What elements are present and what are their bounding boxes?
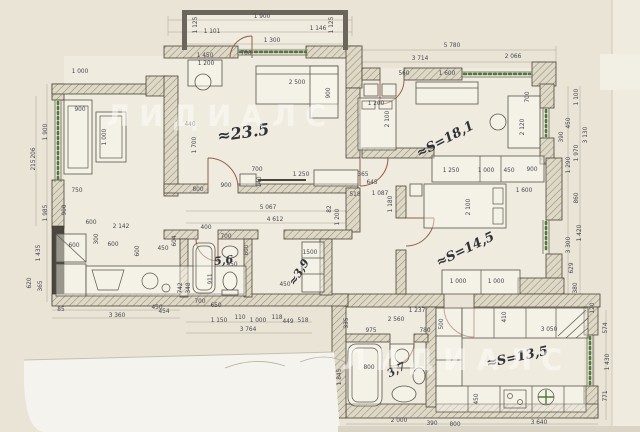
dimension-label: 450	[503, 168, 514, 174]
dimension-label: 1 420	[577, 224, 583, 241]
dimension-label: 2 000	[391, 418, 408, 424]
dimension-label: 900	[526, 167, 537, 173]
dimension-label: 900	[62, 204, 68, 215]
toilet-icon	[223, 272, 237, 290]
dimension-label: 860	[574, 192, 580, 203]
dimension-label: 1 101	[204, 29, 221, 35]
dimension-label: 1 200	[198, 61, 215, 67]
dimension-label: 2 142	[113, 224, 130, 230]
dimension-label: 1 000	[72, 69, 89, 75]
dimension-label: 2 560	[388, 317, 405, 323]
dimension-label: 574	[603, 322, 609, 333]
dimension-label: 365	[38, 280, 44, 291]
dimension-label: 900	[326, 87, 332, 98]
dimension-label: 365	[357, 172, 368, 178]
dimension-label: 1 237	[409, 308, 426, 314]
dimension-label: 82	[327, 205, 333, 213]
dimension-label: 300	[94, 233, 100, 244]
dimension-label: 629	[569, 262, 575, 273]
dimension-label: 911	[208, 273, 214, 284]
cabinet-living	[314, 170, 358, 186]
room-area-label: 5,6	[213, 253, 234, 268]
dimension-label: 1 430	[605, 353, 611, 370]
dimension-label: 120	[590, 302, 596, 313]
dimension-label: 518	[297, 318, 308, 324]
dimension-label: 3 050	[541, 327, 558, 333]
dimension-label: 1 125	[329, 16, 335, 33]
dimension-label: 604	[172, 235, 178, 246]
dimension-label: 2 500	[289, 80, 306, 86]
dimension-label: 900	[74, 107, 85, 113]
dimension-label: 518	[349, 192, 360, 198]
dimension-label: 700	[251, 167, 262, 173]
tv-stand	[240, 174, 256, 186]
dimension-label: 700	[220, 234, 231, 240]
dimension-label: 1 150	[211, 318, 228, 324]
dimension-label: 700	[240, 51, 251, 57]
dimension-label: 449	[282, 319, 293, 325]
floor-plan-photo: 1 1251 9001 1011 1461 1251 3007005 7803 …	[0, 0, 640, 432]
dimension-label: 1 146	[310, 26, 327, 32]
floor-plan-drawing: 1 1251 9001 1011 1461 1251 3007005 7803 …	[0, 0, 640, 432]
dimension-label: 1 970	[574, 144, 580, 161]
dimension-label: 2 066	[505, 54, 522, 60]
dimension-label: 3 300	[566, 236, 572, 253]
dimension-label: 1 985	[43, 204, 49, 221]
bed-icon-14	[424, 184, 506, 228]
dimension-label: 780	[419, 328, 430, 334]
dimension-label: 85	[57, 307, 65, 313]
dimension-label: 3 764	[240, 327, 257, 333]
dimension-label: 454	[158, 309, 169, 315]
dimension-label: 400	[200, 225, 211, 231]
dimension-label: 800	[192, 187, 203, 193]
dimension-label: 600	[135, 245, 141, 256]
dimension-label: 390	[559, 131, 565, 142]
dimension-label: 750	[71, 188, 82, 194]
dimension-label: 2 100	[466, 198, 472, 215]
dimension-label: 600	[85, 220, 96, 226]
dimension-label: 1 300	[264, 38, 281, 44]
dimension-label: 1 435	[36, 244, 42, 261]
dimension-label: 975	[365, 328, 376, 334]
sofa-18	[416, 82, 478, 104]
dimension-label: 1500	[303, 250, 318, 256]
dimension-label: 600	[107, 242, 118, 248]
dimension-label: 380	[573, 282, 579, 293]
dimension-label: 645	[366, 180, 377, 186]
dimension-label: 3 714	[412, 56, 429, 62]
nightstand-14	[410, 184, 422, 196]
dimension-label: 1 600	[516, 188, 533, 194]
dimension-label: 771	[603, 390, 609, 401]
dimension-label: 600	[68, 243, 79, 249]
dimension-label: 450	[566, 117, 572, 128]
dimension-label: 215	[31, 159, 37, 170]
dimension-label: 620	[27, 277, 33, 288]
dimension-label: 1 250	[443, 168, 460, 174]
dimension-label: 1 100	[574, 88, 580, 105]
paper-highlight	[600, 54, 640, 90]
dimension-label: 1 200	[368, 101, 385, 107]
dimension-label: 1 180	[388, 195, 394, 212]
dimension-label: 700	[525, 91, 531, 102]
dimension-label: 348	[186, 282, 192, 293]
watermark-text: ЛИДИАЛС	[106, 99, 335, 133]
dimension-label: 1 200	[335, 208, 341, 225]
sink-37-icon	[392, 386, 416, 402]
dimension-label: 335	[344, 317, 350, 328]
dimension-label: 1 000	[478, 168, 495, 174]
dimension-label: 3 360	[109, 313, 126, 319]
dimension-label: 1 700	[192, 136, 198, 153]
dimension-label: 1 290	[566, 156, 572, 173]
dimension-label: 1 900	[254, 14, 271, 20]
dimension-label: 1 000	[250, 318, 267, 324]
dimension-label: 742	[178, 282, 184, 293]
dimension-label: 900	[220, 183, 231, 189]
dimension-label: 1 000	[450, 279, 467, 285]
dimension-label: 140	[257, 176, 263, 187]
dimension-label: 2 100	[385, 110, 391, 127]
dimension-label: 650	[210, 303, 221, 309]
dimension-label: 1 087	[372, 191, 389, 197]
chair-icon	[195, 74, 211, 90]
desk-chair-icon	[490, 114, 506, 130]
dimension-label: 500	[439, 318, 445, 329]
dimension-label: 3 130	[583, 126, 589, 143]
bottom-shadow-band	[338, 426, 640, 432]
dimension-label: 5 067	[260, 205, 277, 211]
dimension-label: 1 000	[488, 279, 505, 285]
white-sheet	[24, 352, 340, 432]
dimension-label: 1 125	[193, 16, 199, 33]
dimension-label: 5 780	[444, 43, 461, 49]
nightstand-icon2	[382, 84, 396, 96]
dimension-label: 110	[234, 315, 245, 321]
dimension-label: 600	[244, 244, 250, 255]
kitchen13-top-cabinets	[462, 308, 588, 338]
dimension-label: 2 120	[520, 118, 526, 135]
dimension-label: 1 900	[43, 123, 49, 140]
dimension-label: 118	[271, 315, 282, 321]
watermark-text: ЛИДИАЛС	[342, 343, 571, 377]
dimension-label: 1 450	[197, 53, 214, 59]
nightstand-icon	[364, 84, 378, 96]
dimension-label: 410	[502, 311, 508, 322]
dimension-label: 1 600	[439, 71, 456, 77]
dimension-label: 4 612	[267, 217, 284, 223]
dimension-label: 560	[398, 71, 409, 77]
dimension-label: 450	[157, 246, 168, 252]
dimension-label: 3 640	[531, 420, 548, 426]
dimension-label: 700	[194, 299, 205, 305]
dimension-label: 1 250	[293, 172, 310, 178]
toilet-tank	[222, 290, 238, 295]
kitchen-counter-left	[56, 264, 86, 296]
dimension-label: 206	[31, 147, 37, 158]
dimension-label: 450	[474, 393, 480, 404]
